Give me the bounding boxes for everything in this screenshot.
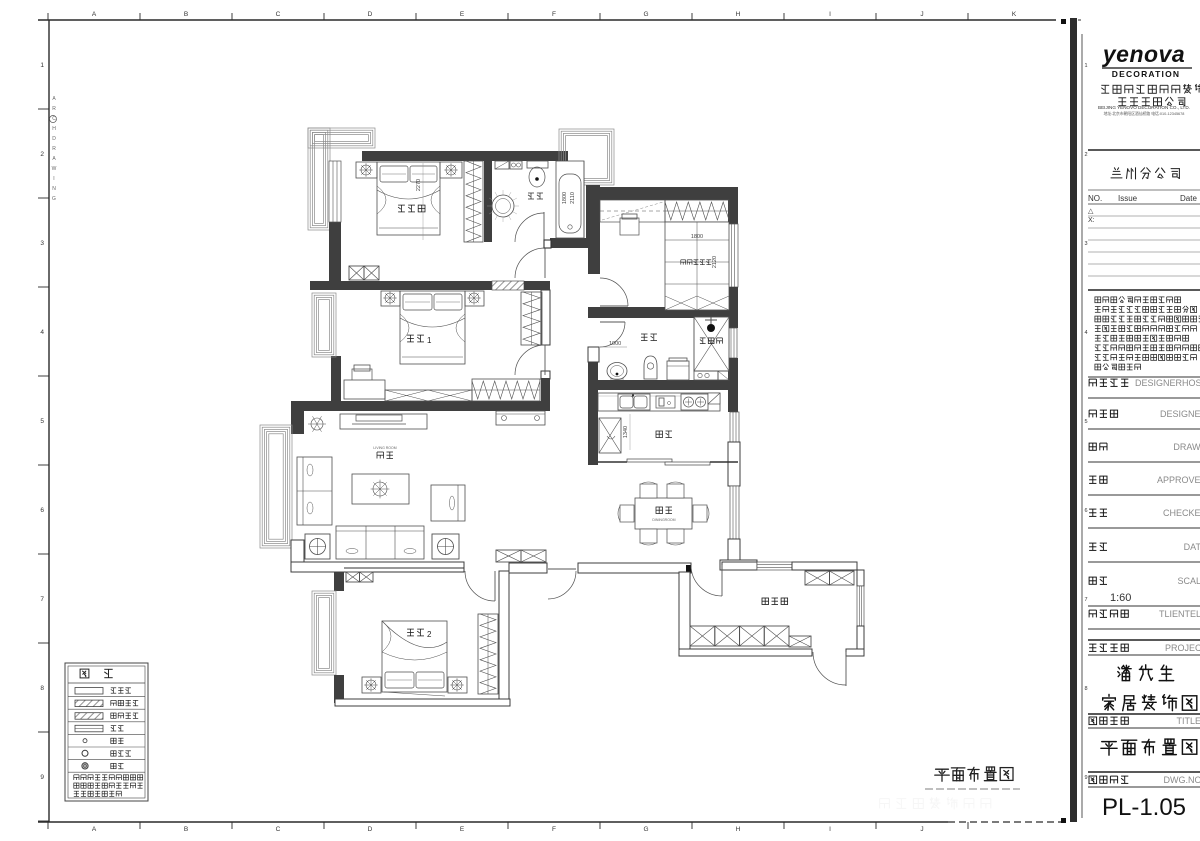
svg-text:A: A: [92, 826, 97, 833]
svg-text:I: I: [829, 826, 831, 833]
svg-text:Date: Date: [1180, 194, 1197, 203]
svg-text:PROJECT: PROJECT: [1165, 643, 1200, 653]
svg-text:W: W: [52, 166, 57, 172]
svg-text:1340: 1340: [623, 426, 629, 438]
svg-text:TLIENTELE: TLIENTELE: [1159, 609, 1200, 619]
svg-text:1: 1: [40, 62, 44, 69]
svg-text:R: R: [52, 106, 56, 112]
svg-text:1: 1: [1084, 63, 1087, 69]
svg-text:4: 4: [1084, 330, 1087, 336]
svg-text:1800: 1800: [691, 234, 703, 240]
svg-text:DECORATION: DECORATION: [1112, 69, 1181, 79]
svg-text:APPROVED: APPROVED: [1157, 475, 1200, 485]
svg-text:R: R: [52, 146, 56, 152]
svg-text:G: G: [643, 826, 648, 833]
svg-text:B: B: [184, 11, 188, 18]
svg-text:6: 6: [1084, 508, 1087, 514]
svg-text:DATE: DATE: [1184, 542, 1200, 552]
svg-text:G: G: [52, 196, 56, 202]
svg-text:8: 8: [1084, 686, 1087, 692]
svg-text:F: F: [552, 826, 556, 833]
svg-text:2270: 2270: [416, 179, 422, 191]
svg-text:I: I: [829, 11, 831, 18]
svg-text:X:: X:: [1088, 217, 1095, 224]
svg-text:Issue: Issue: [1118, 194, 1138, 203]
svg-text:H: H: [52, 126, 56, 132]
svg-text:DESIGNERHOST: DESIGNERHOST: [1135, 378, 1200, 388]
svg-text:1800: 1800: [562, 192, 568, 204]
svg-text:1000: 1000: [609, 341, 621, 347]
svg-text:E: E: [460, 11, 465, 18]
svg-text:C: C: [276, 826, 281, 833]
svg-text:E: E: [460, 826, 465, 833]
svg-text:地址:北京市朝阳区酒仙桥路 电话:010-12345678: 地址:北京市朝阳区酒仙桥路 电话:010-12345678: [1104, 111, 1185, 116]
svg-text:K: K: [1012, 11, 1017, 18]
svg-text:5: 5: [40, 418, 44, 425]
svg-text:G: G: [643, 11, 648, 18]
svg-text:C: C: [276, 11, 281, 18]
svg-text:SCALE: SCALE: [1177, 576, 1200, 586]
svg-text:N: N: [52, 186, 56, 192]
svg-text:J: J: [920, 11, 923, 18]
svg-text:D: D: [368, 11, 373, 18]
svg-text:2: 2: [1084, 152, 1087, 158]
svg-text:3: 3: [1084, 241, 1087, 247]
svg-text:H: H: [736, 11, 741, 18]
svg-text:BEIJING YENOVO DECORATION CO.,: BEIJING YENOVO DECORATION CO., LTD.: [1098, 105, 1190, 110]
svg-text:2120: 2120: [712, 256, 718, 268]
svg-text:8: 8: [40, 685, 44, 692]
svg-text:D: D: [52, 136, 56, 142]
svg-text:9: 9: [1084, 775, 1087, 781]
svg-text:3: 3: [40, 240, 44, 247]
svg-text:H: H: [736, 826, 741, 833]
svg-text:2110: 2110: [570, 192, 576, 204]
svg-text:9: 9: [40, 774, 44, 781]
svg-text:I: I: [53, 176, 54, 182]
svg-text:6: 6: [40, 507, 44, 514]
svg-text:A: A: [92, 11, 97, 18]
svg-text:F: F: [552, 11, 556, 18]
svg-text:△: △: [1088, 208, 1094, 215]
svg-text:2: 2: [40, 151, 44, 158]
svg-text:DESIGNER: DESIGNER: [1160, 409, 1200, 419]
svg-text:LIVING ROOM: LIVING ROOM: [373, 446, 396, 450]
svg-text:PL-1.05: PL-1.05: [1102, 794, 1186, 821]
svg-text:1:60: 1:60: [1110, 592, 1131, 604]
svg-text:DWG.NO.: DWG.NO.: [1164, 775, 1200, 785]
svg-text:7: 7: [40, 596, 44, 603]
svg-text:DININGROOM: DININGROOM: [652, 518, 675, 522]
svg-text:DRAWN: DRAWN: [1173, 442, 1200, 452]
svg-text:7: 7: [1084, 597, 1087, 603]
svg-text:5: 5: [1084, 419, 1087, 425]
svg-text:J: J: [920, 826, 923, 833]
svg-text:TITLE: TITLE: [1176, 716, 1200, 726]
svg-text:1: 1: [427, 336, 432, 345]
svg-text:NO.: NO.: [1088, 194, 1102, 203]
svg-text:B: B: [184, 826, 188, 833]
svg-text:4: 4: [40, 329, 44, 336]
svg-text:2: 2: [427, 630, 432, 639]
svg-text:CHECKED: CHECKED: [1163, 508, 1200, 518]
svg-text:D: D: [368, 826, 373, 833]
svg-text:yenova: yenova: [1102, 41, 1185, 67]
